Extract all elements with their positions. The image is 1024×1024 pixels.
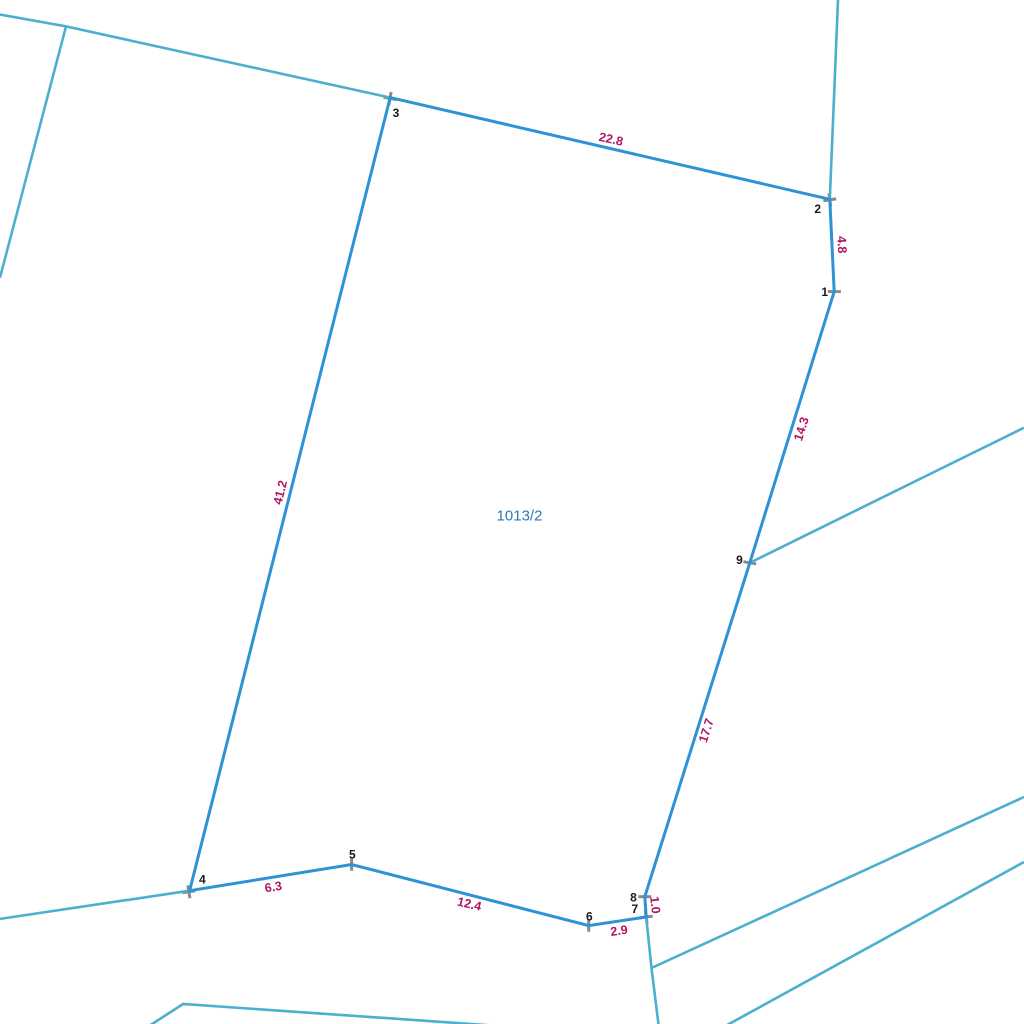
svg-text:6: 6 [586,910,593,924]
svg-text:1013/2: 1013/2 [497,508,543,525]
svg-text:3: 3 [393,106,400,120]
svg-text:8: 8 [630,890,637,904]
svg-text:1: 1 [821,285,828,299]
svg-text:5: 5 [349,847,356,861]
svg-text:2: 2 [814,202,821,216]
svg-text:4: 4 [199,873,206,887]
svg-text:6.3: 6.3 [264,879,283,896]
svg-text:4.8: 4.8 [834,236,849,254]
svg-text:2.9: 2.9 [609,923,628,939]
svg-text:1.0: 1.0 [647,896,663,915]
svg-text:9: 9 [736,553,743,567]
